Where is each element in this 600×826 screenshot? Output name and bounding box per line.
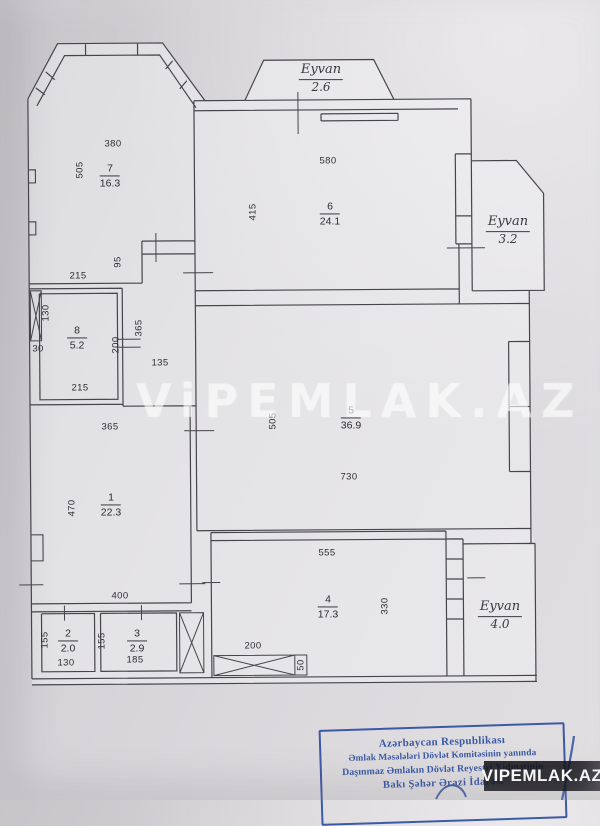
scanned-floor-plan-photo: 716.3624.185.2536.9122.322.032.9417.3Eyv… xyxy=(0,0,600,800)
brand-badge: VIPEMLAK.AZ xyxy=(484,761,600,791)
apartment-footprint xyxy=(28,40,547,685)
watermark: ViPEMLAK.AZ xyxy=(136,374,583,428)
